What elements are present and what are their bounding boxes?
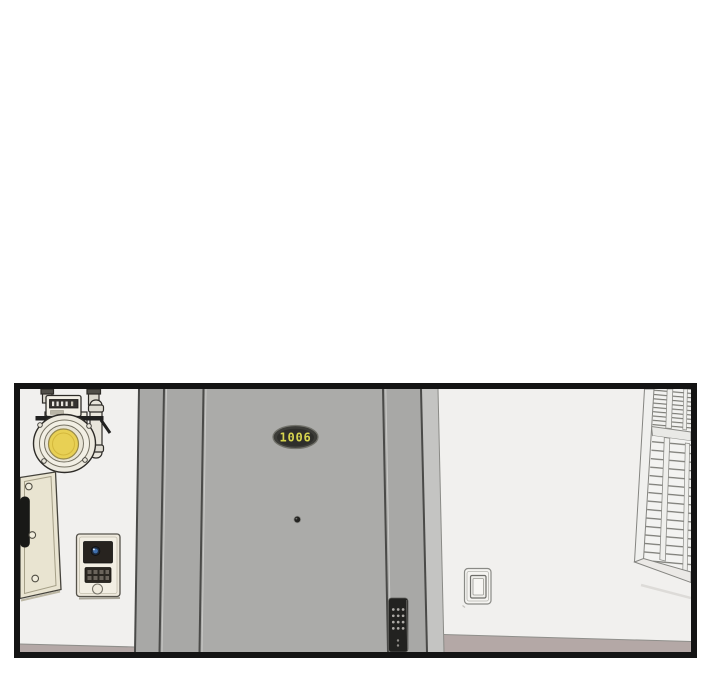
gas-pipe-right-cap xyxy=(87,389,101,394)
light-switch xyxy=(463,569,492,608)
lock-function-dot xyxy=(397,644,399,646)
lock-function-dot xyxy=(397,639,399,641)
door-number-text: 1006 xyxy=(279,431,311,445)
door-number-plate: 1006 xyxy=(273,426,318,449)
hallway-scene: 1006 xyxy=(20,389,691,652)
peephole xyxy=(294,516,301,523)
digital-door-lock xyxy=(389,598,409,652)
page-background: 1006 xyxy=(0,0,720,700)
meter-label xyxy=(51,411,64,415)
gas-pipe-left-cap xyxy=(41,389,54,394)
intercom-speaker xyxy=(85,568,111,583)
intercom-shadow xyxy=(79,598,120,599)
door-assembly: 1006 xyxy=(135,389,444,652)
window-mullion xyxy=(683,389,688,430)
window-mullion xyxy=(666,389,673,429)
intercom-call-button xyxy=(93,584,103,594)
pipe-coupling xyxy=(89,405,104,412)
camera-glint xyxy=(93,548,95,550)
switch-rocker-inner xyxy=(473,579,484,596)
utility-panel-door xyxy=(20,472,61,601)
comic-panel: 1006 xyxy=(14,383,697,658)
dark-recess xyxy=(20,497,30,548)
video-intercom xyxy=(77,534,121,599)
